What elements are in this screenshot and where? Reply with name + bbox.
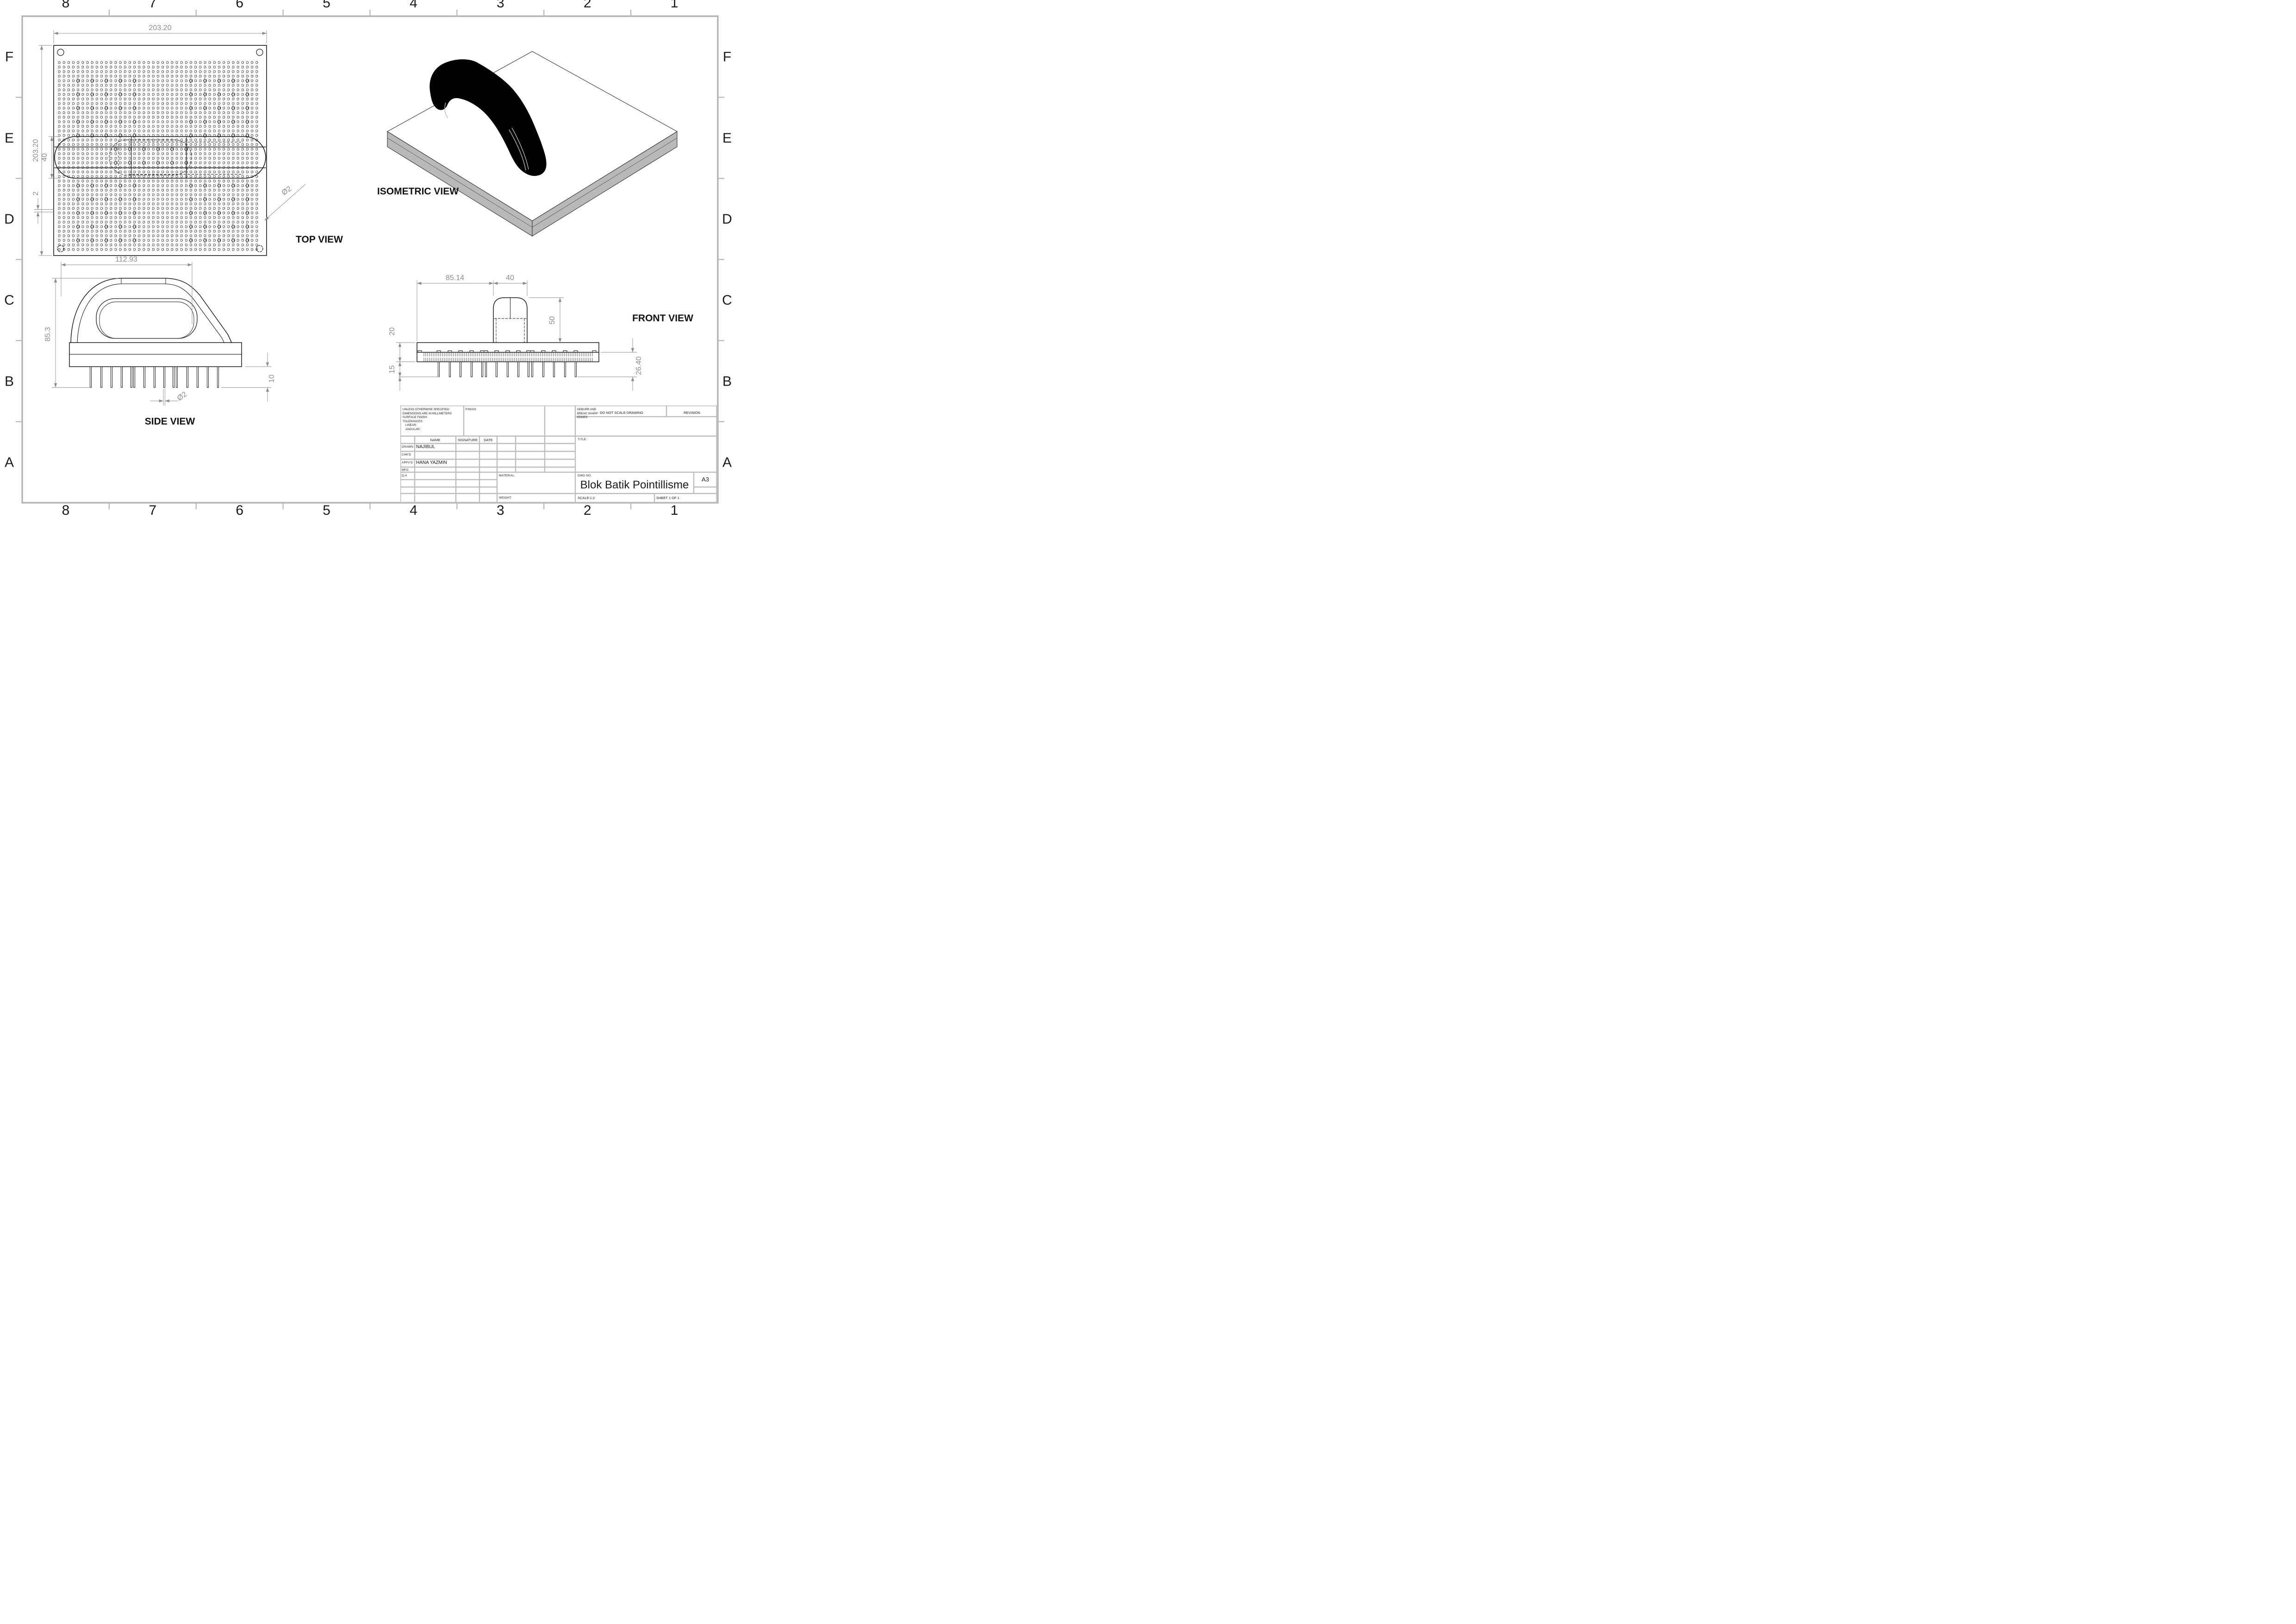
title-label: TITLE: bbox=[578, 438, 587, 441]
general-note-line: SURFACE FINISH: bbox=[403, 416, 463, 420]
front-view: 85.14 40 50 20 15 26.40 bbox=[388, 274, 693, 391]
material-label: MATERIAL: bbox=[499, 474, 515, 477]
do-not-scale-label: DO NOT SCALE DRAWING bbox=[585, 411, 659, 415]
pin bbox=[134, 367, 135, 387]
zone-letter: E bbox=[5, 131, 14, 146]
pin bbox=[90, 367, 92, 387]
pin bbox=[554, 362, 555, 377]
side-pins bbox=[90, 367, 219, 387]
top-view: 203.20 203.20 40 2 Ø2 TOP VIEW bbox=[32, 24, 343, 256]
top-plate-outline bbox=[54, 45, 267, 256]
dim-side-pin-dia bbox=[150, 389, 178, 406]
isometric-view-label: ISOMETRIC VIEW bbox=[377, 186, 459, 197]
zone-number: 5 bbox=[323, 503, 330, 518]
zone-number: 1 bbox=[671, 0, 678, 11]
side-grip-opening-inner bbox=[100, 302, 194, 338]
general-note-line: UNLESS OTHERWISE SPECIFIED: bbox=[403, 408, 463, 412]
pin bbox=[438, 362, 440, 377]
pin bbox=[187, 367, 188, 387]
pin bbox=[543, 362, 544, 377]
dim-side-height-text: 85.3 bbox=[44, 327, 52, 341]
dim-front-grip-w-text: 40 bbox=[506, 274, 514, 282]
pin bbox=[449, 362, 451, 377]
pin bbox=[121, 367, 123, 387]
finish-label: FINISH: bbox=[466, 408, 477, 411]
zone-number: 7 bbox=[149, 503, 156, 518]
zone-letter: E bbox=[722, 131, 732, 146]
pin bbox=[460, 362, 461, 377]
zone-letter: B bbox=[722, 374, 732, 389]
sheet-text: SHEET 1 OF 1 bbox=[656, 496, 679, 500]
revision-label: REVISION bbox=[671, 411, 713, 415]
pin bbox=[218, 367, 219, 387]
general-note-line: DIMENSIONS ARE IN MILLIMETERS bbox=[403, 412, 463, 416]
signature-header: SIGNATURE bbox=[456, 438, 479, 442]
scale-text: SCALE:1:2 bbox=[578, 496, 595, 500]
pin bbox=[207, 367, 209, 387]
dim-side-pin-text: 10 bbox=[268, 375, 276, 383]
dim-row-gap bbox=[34, 198, 54, 224]
zone-number: 2 bbox=[584, 0, 591, 11]
approval-row-name: NAJIBUL bbox=[416, 444, 435, 450]
pin bbox=[485, 362, 487, 377]
pin bbox=[101, 367, 102, 387]
pin bbox=[565, 362, 566, 377]
side-handle-outer bbox=[71, 278, 231, 343]
zone-number: 8 bbox=[62, 503, 70, 518]
front-view-label: FRONT VIEW bbox=[632, 313, 693, 324]
title-block: UNLESS OTHERWISE SPECIFIED:DIMENSIONS AR… bbox=[400, 406, 717, 503]
approval-row-name: HANA YAZMIN bbox=[416, 460, 447, 465]
dim-row-gap-text: 2 bbox=[32, 191, 40, 195]
approval-row-label: MFG bbox=[402, 468, 409, 472]
general-note-line: ANGULAR: bbox=[403, 428, 463, 432]
pin bbox=[507, 362, 509, 377]
side-grip-opening bbox=[96, 299, 197, 338]
pin bbox=[173, 367, 174, 387]
zone-letter: F bbox=[5, 50, 13, 65]
name-header: NAME bbox=[415, 438, 456, 442]
dim-slot-width-text: 40 bbox=[41, 153, 49, 162]
dim-side-span-text: 112.93 bbox=[115, 256, 137, 263]
weight-label: WEIGHT: bbox=[499, 496, 512, 500]
zone-letter: C bbox=[722, 293, 732, 308]
pin bbox=[482, 362, 483, 377]
zone-letter: F bbox=[723, 50, 731, 65]
dim-top-width-text: 203.20 bbox=[149, 24, 172, 32]
date-header: DATE bbox=[479, 438, 497, 442]
zone-number: 6 bbox=[236, 0, 243, 11]
dim-side-height bbox=[52, 278, 118, 387]
deburr-note-line: EDGES bbox=[577, 416, 605, 420]
approval-row-label: DRAWN bbox=[402, 445, 413, 449]
dim-hole-dia-text: Ø2 bbox=[280, 185, 293, 197]
dwg-no-value: Blok Batik Pointillisme bbox=[575, 479, 694, 492]
side-view-label: SIDE VIEW bbox=[145, 416, 195, 427]
zone-number: 7 bbox=[149, 0, 156, 11]
pin bbox=[518, 362, 519, 377]
dim-front-offset bbox=[417, 281, 527, 341]
dim-top-height bbox=[39, 45, 52, 256]
dim-front-plate-t-text: 20 bbox=[388, 327, 396, 336]
zone-letter: A bbox=[722, 455, 732, 470]
pin bbox=[176, 367, 178, 387]
general-note-line: TOLERANCES: bbox=[403, 420, 463, 424]
dim-front-pin-text: 15 bbox=[388, 365, 396, 374]
drawing-sheet: 8877665544332211FFEEDDCCBBAA 203.20 bbox=[0, 0, 735, 520]
zone-number: 3 bbox=[497, 0, 504, 11]
paper-size-badge: A3 bbox=[694, 476, 717, 483]
zone-number: 4 bbox=[410, 0, 417, 11]
approval-row-label: Q.A bbox=[402, 474, 407, 477]
pin bbox=[532, 362, 533, 377]
zone-letter: D bbox=[722, 212, 732, 227]
dim-front-total-text: 26.40 bbox=[635, 356, 643, 375]
pin bbox=[164, 367, 165, 387]
general-note-line: LINEAR: bbox=[403, 424, 463, 428]
pin bbox=[496, 362, 498, 377]
dim-front-pin bbox=[399, 362, 439, 391]
dim-front-grip-h-text: 50 bbox=[548, 316, 556, 325]
dwg-no-label: DWG NO. bbox=[578, 474, 591, 477]
zone-number: 8 bbox=[62, 0, 70, 11]
dim-front-grip-h bbox=[529, 298, 564, 343]
pin bbox=[528, 362, 529, 377]
approval-row-label: APPV'D bbox=[402, 461, 413, 464]
pin bbox=[471, 362, 473, 377]
side-base-plate bbox=[69, 343, 242, 367]
zone-number: 5 bbox=[323, 0, 330, 11]
dim-top-height-text: 203.20 bbox=[32, 139, 40, 162]
zone-letter: C bbox=[4, 293, 14, 308]
dim-front-offset-text: 85.14 bbox=[446, 274, 464, 282]
top-view-label: TOP VIEW bbox=[296, 234, 343, 245]
zone-number: 6 bbox=[236, 503, 243, 518]
pin bbox=[154, 367, 156, 387]
dim-front-plate-t bbox=[396, 343, 415, 362]
pin bbox=[575, 362, 577, 377]
dim-top-width bbox=[54, 31, 267, 44]
dim-side-pin-dia-text: Ø2 bbox=[176, 390, 188, 402]
isometric-view: ISOMETRIC VIEW bbox=[377, 51, 677, 236]
general-notes: UNLESS OTHERWISE SPECIFIED:DIMENSIONS AR… bbox=[403, 408, 463, 432]
zone-letter: A bbox=[5, 455, 14, 470]
zone-letter: B bbox=[5, 374, 14, 389]
approval-row-label: CHK'D bbox=[402, 453, 411, 456]
pin bbox=[131, 367, 132, 387]
pin bbox=[111, 367, 112, 387]
side-handle-inner-wall bbox=[77, 284, 224, 343]
zone-letter: D bbox=[4, 212, 14, 227]
side-view: 112.93 85.3 10 Ø2 SIDE VIEW bbox=[44, 256, 276, 427]
front-pins bbox=[438, 362, 577, 377]
pin bbox=[197, 367, 199, 387]
dim-side-span bbox=[61, 262, 192, 324]
pin bbox=[144, 367, 145, 387]
